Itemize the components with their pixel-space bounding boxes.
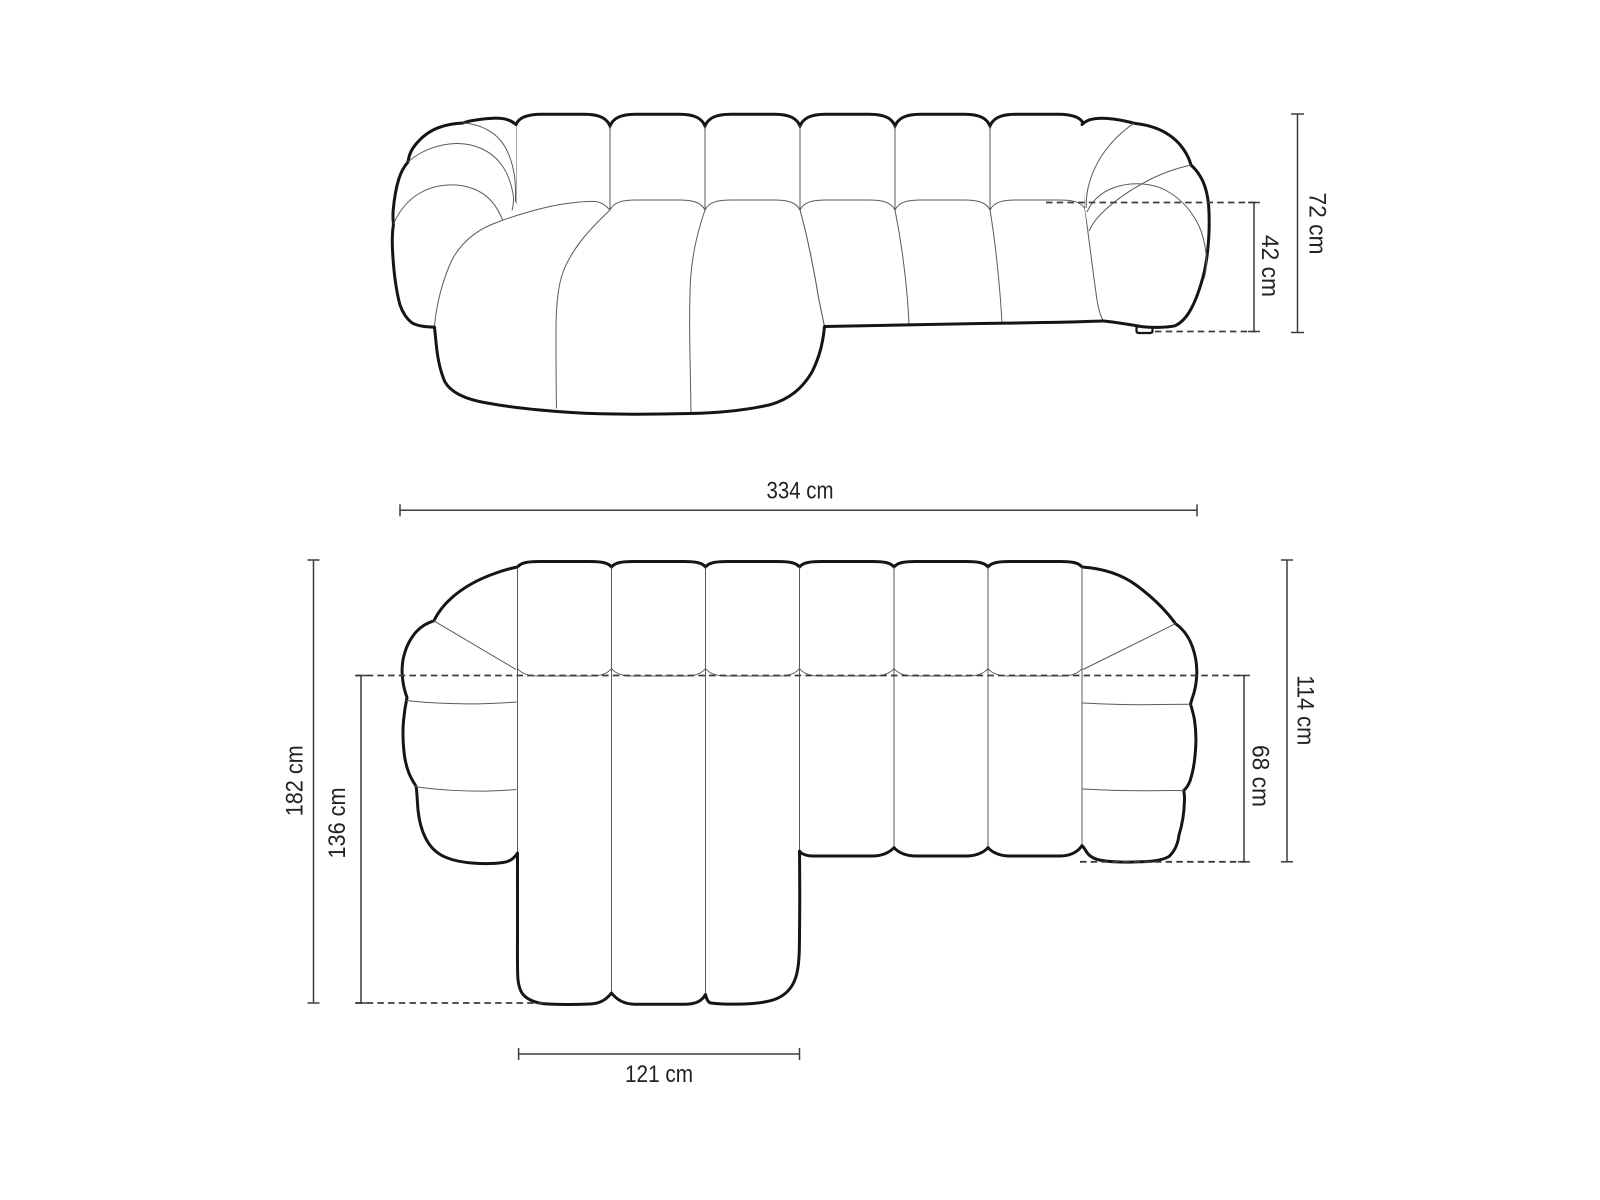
svg-text:136 cm: 136 cm: [324, 788, 351, 859]
svg-text:114 cm: 114 cm: [1291, 675, 1318, 745]
svg-text:121 cm: 121 cm: [625, 1061, 693, 1088]
svg-text:68 cm: 68 cm: [1247, 745, 1274, 807]
svg-text:72 cm: 72 cm: [1304, 193, 1331, 255]
svg-text:42 cm: 42 cm: [1256, 235, 1283, 297]
svg-text:334 cm: 334 cm: [767, 478, 834, 505]
svg-text:182 cm: 182 cm: [282, 745, 309, 816]
